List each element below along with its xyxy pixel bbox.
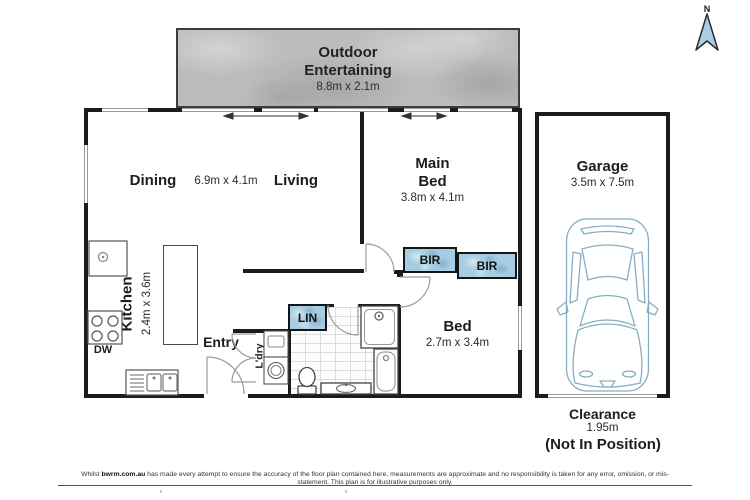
kitchen-label: Kitchen [119, 276, 137, 331]
window-mainbed-2 [458, 108, 512, 112]
window-east-bed2 [518, 306, 522, 350]
burner-4 [108, 331, 118, 341]
laundry-label: L'dry [254, 343, 266, 368]
laundry-door-bottom [232, 358, 256, 382]
outdoor-name-line2: Entertaining [304, 62, 392, 80]
north-arrow-icon [696, 14, 718, 50]
sink-bowl-2 [163, 374, 177, 391]
built-in-robe-main: BIR [403, 247, 457, 273]
window-mainbed-1 [404, 108, 450, 112]
oven-dial-icon [99, 253, 108, 262]
disclaimer-prefix: Whilst [81, 471, 101, 478]
bed2-door [400, 277, 430, 307]
laundry-trough-bowl [268, 336, 284, 347]
linen-label: LIN [298, 311, 317, 325]
clearance-value: 1.95m [540, 422, 665, 435]
laundry-trough-icon [264, 331, 288, 357]
main-bed-label-line1: Main [385, 155, 480, 173]
garage-door-jamb-left [535, 394, 548, 398]
washer-door-outer [268, 363, 284, 379]
sliding-door-north-2 [318, 108, 388, 112]
dining-label: Dining [118, 172, 188, 190]
burner-3 [92, 331, 102, 341]
kitchen-dims: 2.4m x 3.6m [141, 272, 154, 335]
kitchen-island-bench [163, 245, 198, 345]
sliding-door-arrows [224, 113, 446, 119]
bed2-label: Bed [410, 318, 505, 336]
sink-tap-1 [153, 377, 156, 380]
washing-machine-icon [264, 357, 288, 384]
sink-drainer-lines [130, 375, 144, 391]
kitchen-sink-unit [126, 370, 178, 395]
garage-dims: 3.5m x 7.5m [540, 177, 665, 190]
window-west-living [84, 145, 88, 203]
wall-east [518, 108, 522, 398]
wall-bath-bed2 [397, 305, 401, 394]
oven-dial-dot [102, 256, 105, 259]
slide-arrowhead-2a [402, 113, 411, 119]
window-north-2 [262, 108, 314, 112]
north-label: N [704, 4, 711, 14]
sink-bowl-1 [147, 374, 161, 391]
linen-closet: LIN [288, 304, 327, 331]
scale-tick-1 [160, 490, 162, 493]
entry-door-opening [204, 394, 248, 398]
slide-arrowhead-1b [299, 113, 308, 119]
sink-tap-2 [169, 377, 172, 380]
entry-label: Entry [196, 333, 246, 351]
bed2-dims: 2.7m x 3.4m [410, 337, 505, 350]
clearance-note: (Not In Position) [528, 436, 678, 454]
burner-1 [92, 316, 102, 326]
garage-door [548, 394, 657, 398]
north-arrow: N [696, 4, 718, 50]
washer-door-inner [271, 366, 281, 376]
entry-door [207, 357, 244, 394]
disclaimer-body: has made every attempt to ensure the acc… [145, 471, 669, 486]
scale-tick-2 [345, 490, 347, 493]
outdoor-name-line1: Outdoor [318, 44, 377, 62]
burner-2 [108, 316, 118, 326]
built-in-robe-bed2: BIR [457, 252, 517, 279]
oven-icon [89, 241, 127, 276]
garage-door-jamb-right [657, 394, 670, 398]
slide-arrowhead-1a [224, 113, 233, 119]
bir-main-label: BIR [420, 253, 441, 267]
sliding-door-north-1 [182, 108, 254, 112]
wall-south [84, 394, 522, 398]
wall-bath-top-left [327, 304, 334, 307]
main-bed-door [366, 244, 394, 272]
clearance-label: Clearance [540, 405, 665, 423]
outdoor-dims: 8.8m x 2.1m [316, 81, 379, 93]
main-bed-dims: 3.8m x 4.1m [385, 192, 480, 205]
laundry-fixtures [264, 331, 288, 384]
wall-stub-bed2 [397, 273, 403, 277]
garage-label: Garage [540, 158, 665, 176]
living-label: Living [261, 172, 331, 190]
footer-divider [58, 485, 692, 486]
dishwasher-label: DW [86, 344, 120, 356]
main-bed-label-line2: Bed [385, 173, 480, 191]
window-north-1 [102, 108, 148, 112]
wall-living-mainbed [360, 108, 364, 244]
garage-room [535, 112, 670, 398]
living-dining-dims: 6.9m x 4.1m [186, 175, 266, 188]
slide-arrowhead-2b [437, 113, 446, 119]
floor-plan: Outdoor Entertaining 8.8m x 2.1m BIR BIR… [0, 0, 750, 500]
cooktop-icon [88, 311, 122, 344]
wall-laundry-bath [288, 330, 291, 394]
wall-bath-top-right [358, 304, 400, 307]
wall-hall [243, 269, 364, 273]
disclaimer-brand: bwrm.com.au [101, 471, 145, 478]
bir-bed2-label: BIR [477, 259, 498, 273]
outdoor-entertaining-area: Outdoor Entertaining 8.8m x 2.1m [176, 28, 520, 108]
